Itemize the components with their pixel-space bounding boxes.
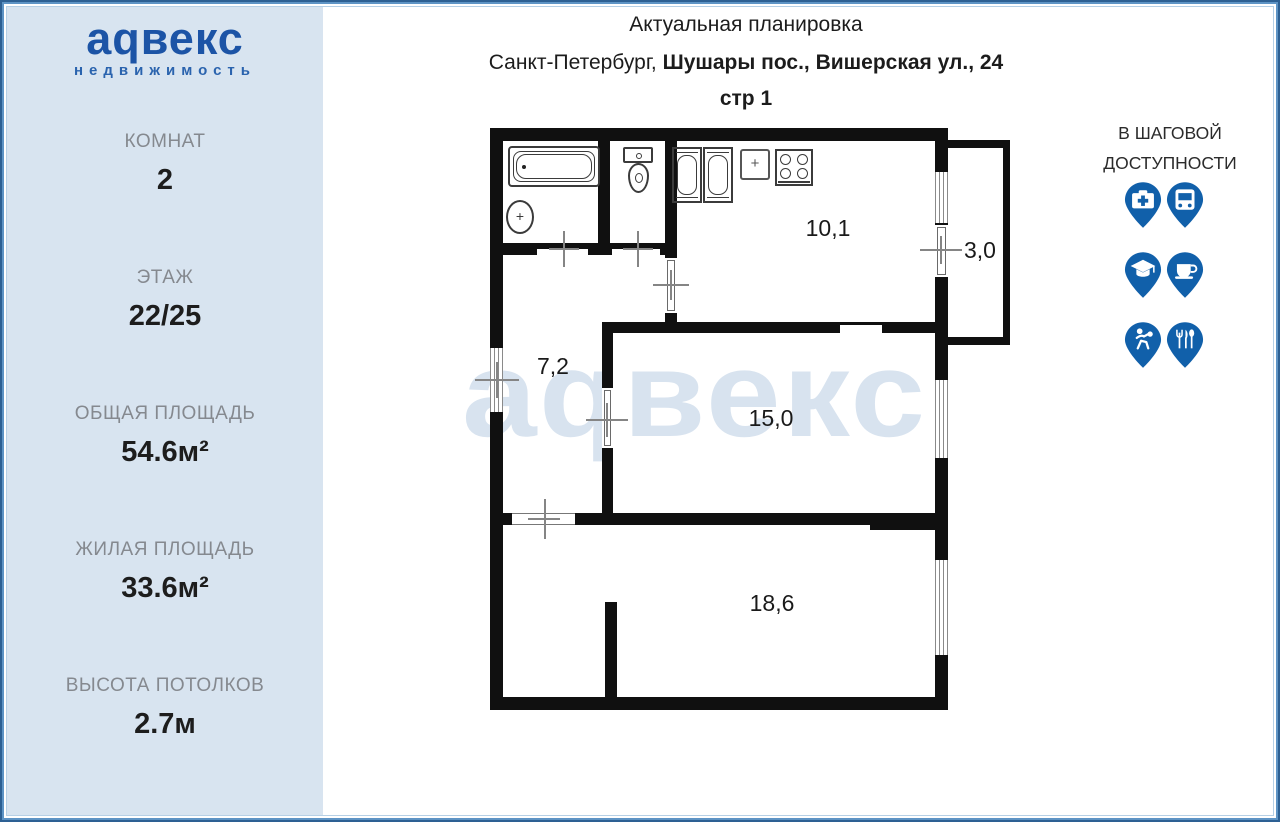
wall-segment: [940, 236, 942, 264]
bathroom-sink-icon: [506, 200, 534, 234]
wall-segment: [549, 248, 579, 250]
wall-segment: [948, 337, 1010, 345]
nearby-panel: В ШАГОВОЙ ДОСТУПНОСТИ: [1088, 118, 1252, 178]
wall-segment: [623, 248, 653, 250]
bathtub-icon: [508, 146, 600, 187]
nearby-title-line1: В ШАГОВОЙ: [1088, 118, 1252, 148]
washer-icon: [703, 147, 733, 203]
restaurant-pin-icon: [1166, 321, 1204, 369]
room-area-bedroom: 18,6: [737, 590, 807, 617]
window: [935, 560, 948, 655]
window: [935, 380, 948, 458]
room-area-hallway: 7,2: [518, 353, 588, 380]
wall-segment: [602, 322, 935, 333]
wall-segment: [870, 513, 935, 530]
page: аqвекс недвижимость КОМНАТ 2 ЭТАЖ 22/25 …: [0, 0, 1280, 822]
wall-segment: [490, 128, 948, 141]
sport-pin-icon: [1124, 321, 1162, 369]
room-area-living: 15,0: [736, 405, 806, 432]
stove-icon: [775, 149, 813, 186]
hospital-pin-icon: [1124, 181, 1162, 229]
wall-segment: [496, 362, 498, 398]
wall-segment: [606, 403, 608, 437]
wall-segment: [605, 602, 617, 697]
wall-segment: [528, 518, 560, 520]
bus-pin-icon: [1166, 181, 1204, 229]
wall-segment: [840, 325, 882, 333]
room-area-kitchen: 10,1: [793, 215, 863, 242]
nearby-title-line2: ДОСТУПНОСТИ: [1088, 148, 1252, 178]
toilet-icon: [623, 147, 653, 163]
education-pin-icon: [1124, 251, 1162, 299]
wall-segment: [490, 128, 503, 710]
toilet-bowl-icon: [628, 163, 649, 193]
room-area-balcony: 3,0: [945, 237, 1015, 264]
cafe-pin-icon: [1166, 251, 1204, 299]
wall-segment: [948, 140, 1010, 148]
wall-segment: [490, 697, 948, 710]
washer-icon: [672, 147, 702, 203]
window: [935, 172, 948, 223]
watermark: аqвекс: [462, 333, 927, 455]
kitchen-sink-icon: [740, 149, 770, 180]
wall-segment: [670, 270, 672, 300]
